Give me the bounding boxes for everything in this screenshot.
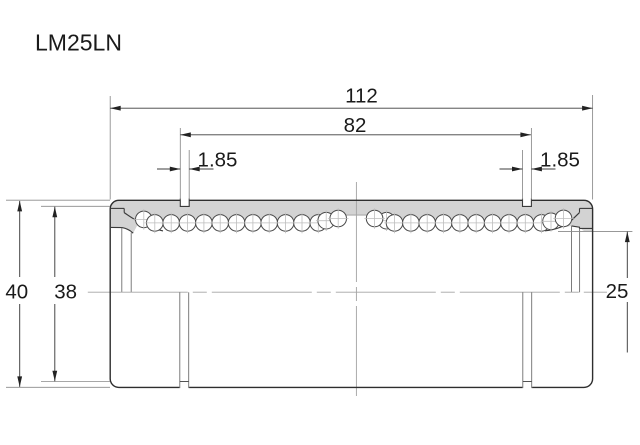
svg-text:1.85: 1.85 (540, 149, 580, 172)
svg-text:82: 82 (344, 114, 367, 137)
svg-text:25: 25 (606, 280, 629, 303)
svg-text:112: 112 (345, 84, 378, 107)
svg-text:LM25LN: LM25LN (35, 29, 122, 55)
svg-text:38: 38 (54, 280, 77, 303)
svg-text:1.85: 1.85 (198, 149, 238, 172)
svg-text:40: 40 (5, 280, 28, 303)
